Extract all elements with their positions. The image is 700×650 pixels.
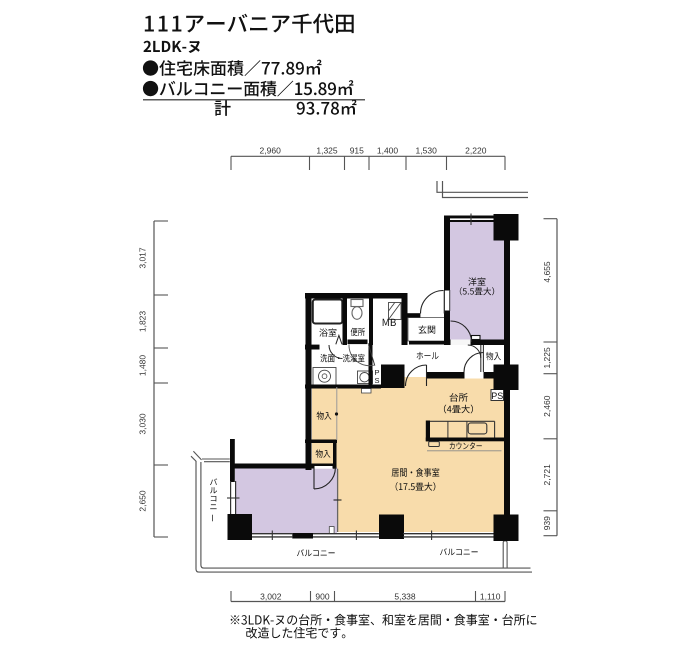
svg-text:2,220: 2,220 (465, 146, 487, 156)
svg-text:1,480: 1,480 (138, 355, 148, 377)
svg-text:S: S (374, 376, 379, 385)
svg-text:1,225: 1,225 (542, 347, 552, 369)
svg-text:939: 939 (542, 516, 552, 530)
svg-text:900: 900 (315, 591, 329, 601)
svg-text:1,325: 1,325 (316, 146, 338, 156)
svg-text:2,460: 2,460 (542, 395, 552, 417)
svg-text:2,721: 2,721 (542, 464, 552, 486)
svg-text:3,030: 3,030 (138, 413, 148, 435)
svg-text:4,655: 4,655 (542, 261, 552, 283)
svg-text:3,002: 3,002 (260, 591, 282, 601)
svg-text:1,400: 1,400 (377, 146, 399, 156)
svg-text:2,650: 2,650 (138, 490, 148, 512)
svg-text:1,823: 1,823 (138, 311, 148, 333)
svg-text:3,017: 3,017 (138, 247, 148, 269)
svg-text:915: 915 (350, 146, 364, 156)
svg-text:1,110: 1,110 (480, 591, 501, 601)
svg-text:1,530: 1,530 (416, 146, 438, 156)
svg-text:PS: PS (491, 391, 503, 401)
svg-text:2,960: 2,960 (260, 146, 282, 156)
svg-text:5,338: 5,338 (394, 591, 416, 601)
